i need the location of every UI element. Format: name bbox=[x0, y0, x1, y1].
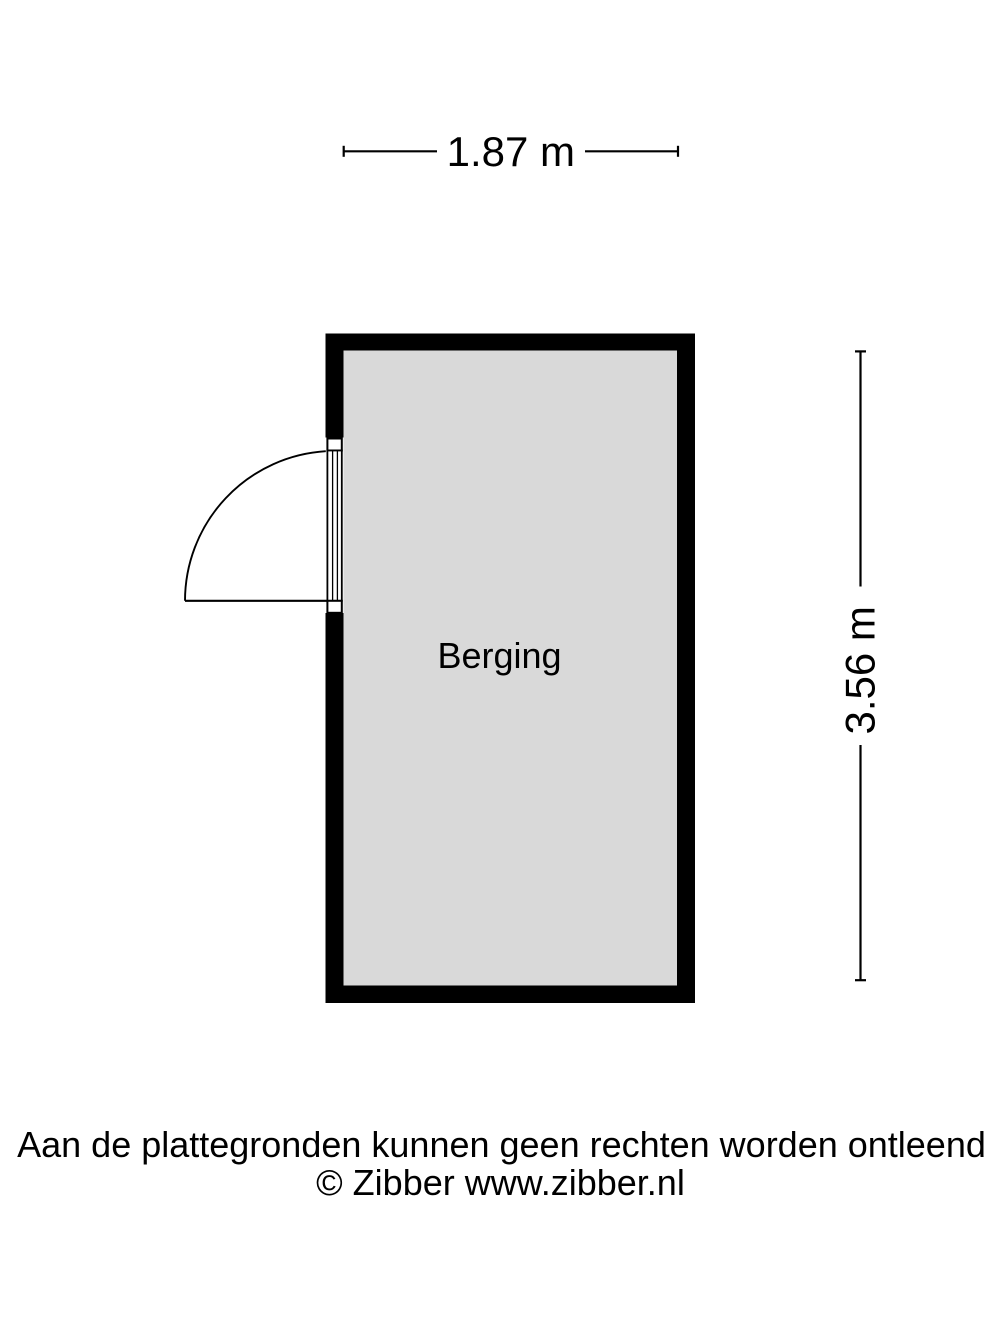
svg-text:3.56 m: 3.56 m bbox=[837, 606, 884, 734]
svg-text:Berging: Berging bbox=[437, 635, 561, 676]
svg-text:© Zibber www.zibber.nl: © Zibber www.zibber.nl bbox=[316, 1162, 685, 1203]
svg-text:Aan de plattegronden kunnen ge: Aan de plattegronden kunnen geen rechten… bbox=[17, 1124, 986, 1165]
svg-text:1.87 m: 1.87 m bbox=[447, 128, 575, 175]
